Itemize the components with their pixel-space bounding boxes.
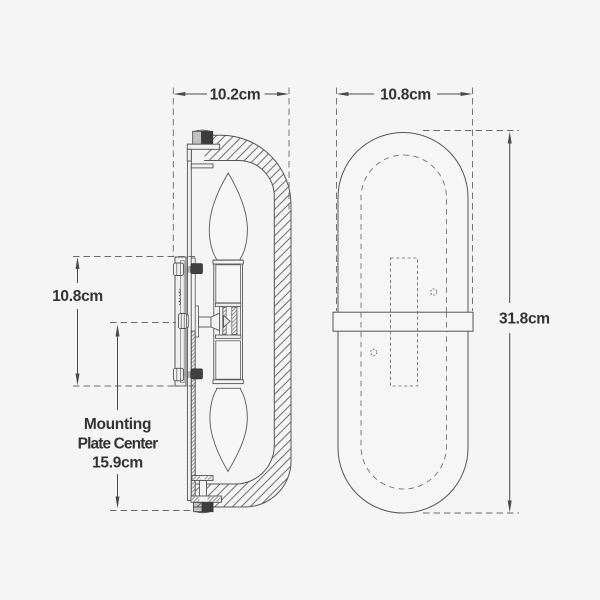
- svg-text:31.8cm: 31.8cm: [499, 311, 550, 328]
- svg-text:15.9cm: 15.9cm: [92, 455, 143, 472]
- svg-text:10.2cm: 10.2cm: [210, 87, 261, 104]
- svg-text:Plate Center: Plate Center: [78, 436, 159, 453]
- svg-text:10.8cm: 10.8cm: [52, 288, 103, 305]
- svg-text:10.8cm: 10.8cm: [380, 87, 431, 104]
- svg-text:Mounting: Mounting: [84, 416, 151, 433]
